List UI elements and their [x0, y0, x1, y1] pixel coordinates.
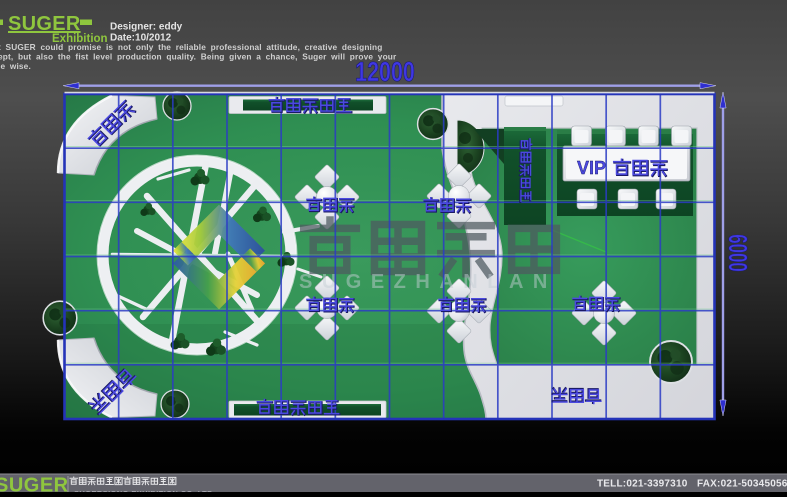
svg-text:6000: 6000 — [723, 234, 753, 272]
svg-text:SUGER: SUGER — [0, 475, 69, 493]
svg-text:SUGEZHANLAN: SUGEZHANLAN — [299, 271, 557, 293]
svg-text:TELL:021-3397310: TELL:021-3397310 — [597, 479, 688, 490]
svg-text:Designer: eddy: Designer: eddy — [110, 22, 183, 33]
svg-text:FAX:021-50345056: FAX:021-50345056 — [697, 479, 787, 490]
svg-text:hat SUGER could promise is not: hat SUGER could promise is not only the … — [0, 42, 382, 52]
svg-text:12000: 12000 — [355, 58, 415, 88]
svg-text:ncept, but also the fist level: ncept, but also the fist level productio… — [0, 52, 397, 62]
svg-text:oice wise.: oice wise. — [0, 61, 31, 71]
svg-text:VIP: VIP — [577, 158, 606, 178]
svg-text:SUGER: SUGER — [8, 13, 81, 35]
